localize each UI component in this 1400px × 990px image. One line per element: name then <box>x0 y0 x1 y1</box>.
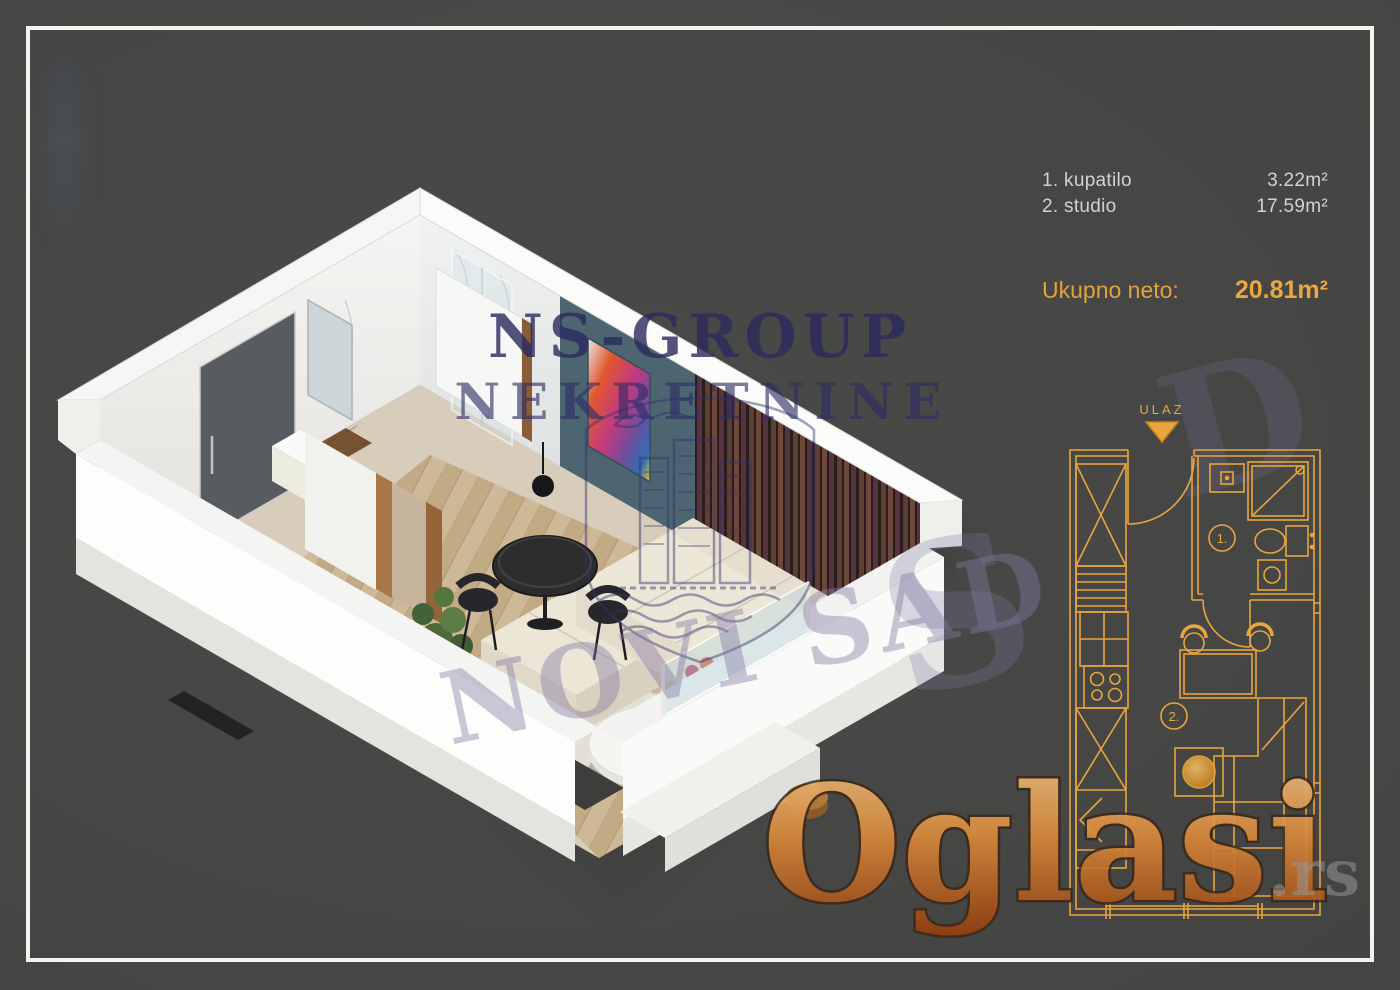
flyer-canvas: NS-GROUP NEKRETNINE NOVI SAD S D 1. kupa… <box>0 0 1400 990</box>
portal-watermark-suffix: .rs <box>1268 836 1360 911</box>
portal-watermark-layer: Oglasi .rs <box>0 0 1400 990</box>
portal-watermark: Oglasi <box>762 750 1329 938</box>
